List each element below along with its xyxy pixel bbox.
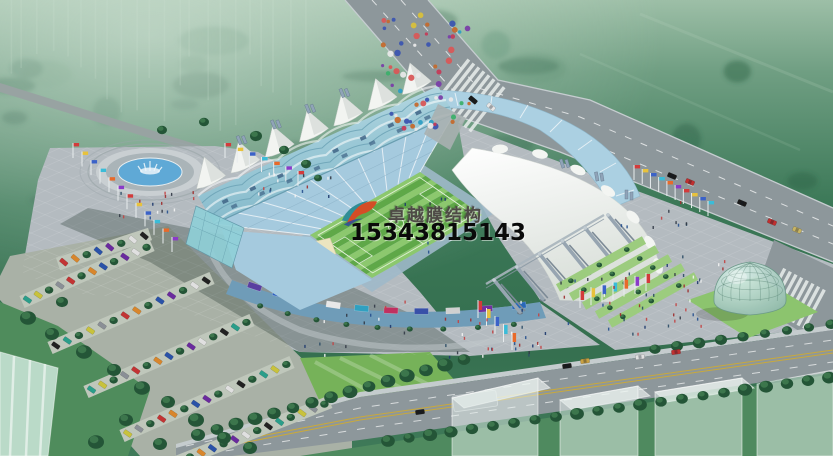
scene-canvas bbox=[0, 0, 833, 456]
corner-building bbox=[0, 352, 58, 456]
stadium-aerial-rendering: 卓越膜结构 15343815143 bbox=[0, 0, 833, 456]
